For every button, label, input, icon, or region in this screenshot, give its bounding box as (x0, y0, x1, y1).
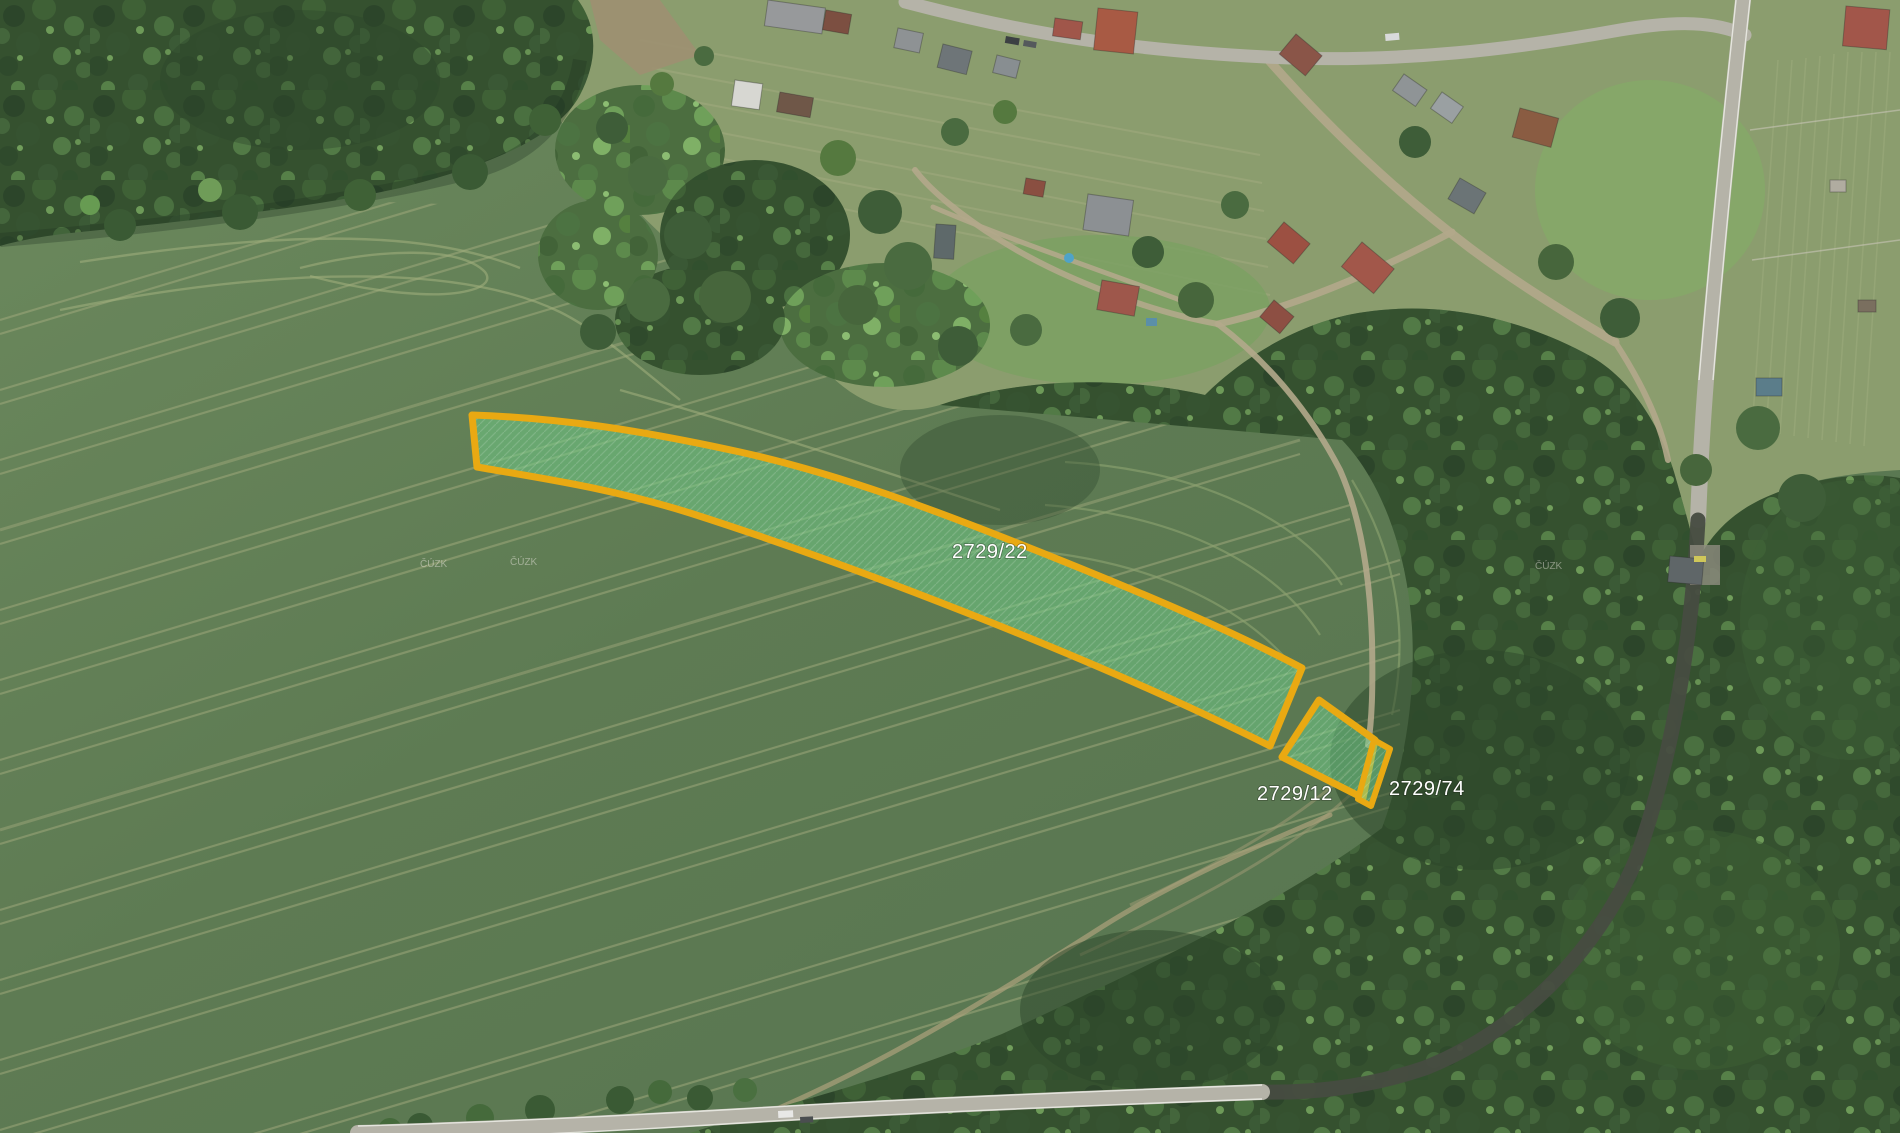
house-roof (934, 224, 956, 259)
car (778, 1110, 793, 1118)
car (1694, 556, 1706, 562)
car (800, 1116, 813, 1123)
map-canvas[interactable]: 2729/22 2729/12 2729/74 ČÚZK ČÚZK ČÚZK (0, 0, 1900, 1133)
cuzk-watermark: ČÚZK (420, 557, 448, 570)
pool (1064, 253, 1074, 263)
house-roof (1843, 6, 1890, 50)
house-roof (823, 10, 852, 34)
pool (1146, 318, 1157, 326)
house-roof (1052, 18, 1082, 40)
shed-roof (1830, 180, 1846, 192)
parcel-label-2729-12: 2729/12 (1257, 783, 1333, 805)
shed-roof (1858, 300, 1876, 312)
cuzk-watermark: ČÚZK (510, 555, 538, 568)
cuzk-watermark: ČÚZK (1535, 559, 1563, 572)
house-roof (731, 80, 762, 110)
house-roof (1083, 194, 1134, 236)
parcel-label-2729-74: 2729/74 (1389, 778, 1465, 800)
house-roof (1097, 280, 1140, 316)
house-roof (1756, 378, 1782, 396)
parcel-label-2729-22: 2729/22 (952, 541, 1028, 563)
house-roof (1023, 178, 1045, 197)
car (1385, 33, 1400, 41)
aerial-map-viewport[interactable]: 2729/22 2729/12 2729/74 ČÚZK ČÚZK ČÚZK (0, 0, 1900, 1133)
house-roof (1094, 8, 1138, 54)
